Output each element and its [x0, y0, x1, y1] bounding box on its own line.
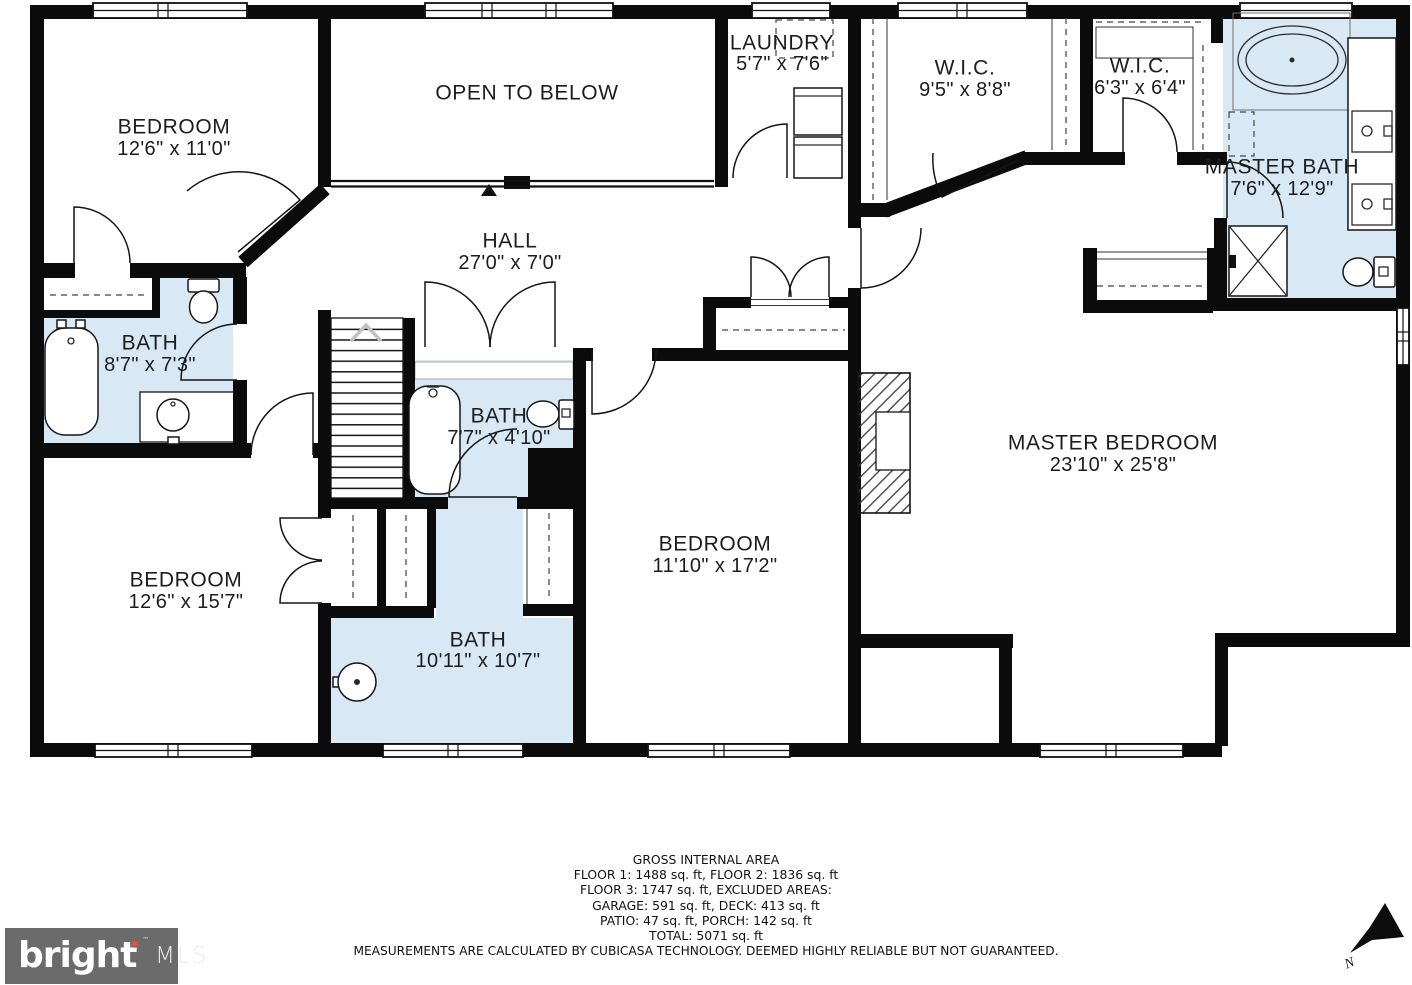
logo-brand-text: bright	[18, 938, 136, 974]
room-label: BATH	[471, 405, 528, 428]
room-label: HALL	[483, 230, 538, 253]
room-label: LAUNDRY	[730, 32, 834, 55]
compass-north-icon: N	[1336, 893, 1412, 971]
room-label: BATH	[122, 332, 179, 355]
room-label: MASTER BEDROOM	[1008, 432, 1218, 455]
room-label: 11'10" x 17'2"	[653, 555, 778, 577]
fireplace	[858, 373, 910, 513]
toilet-icon	[1343, 257, 1395, 287]
floor-plan: BEDROOM12'6" x 11'0"OPEN TO BELOWLAUNDRY…	[0, 0, 1412, 985]
room-label: 10'11" x 10'7"	[416, 650, 541, 672]
room-label: 7'6" x 12'9"	[1230, 178, 1333, 200]
room-label: 12'6" x 15'7"	[129, 591, 244, 613]
room-label: 6'3" x 6'4"	[1094, 77, 1186, 99]
room-label: W.I.C.	[935, 57, 996, 80]
area-line: GARAGE: 591 sq. ft, DECK: 413 sq. ft	[0, 898, 1412, 913]
room-label: 12'6" x 11'0"	[117, 138, 230, 160]
staircase	[331, 318, 403, 498]
area-line: FLOOR 3: 1747 sq. ft, EXCLUDED AREAS:	[0, 882, 1412, 897]
windows	[93, 3, 1409, 757]
room-label: 27'0" x 7'0"	[458, 252, 561, 274]
shower-stall-icon	[1229, 226, 1287, 296]
room-label: 9'5" x 8'8"	[919, 79, 1011, 101]
room-label: BATH	[450, 629, 507, 652]
area-total: TOTAL: 5071 sq. ft	[0, 928, 1412, 943]
room-label: MASTER BATH	[1205, 156, 1359, 179]
logo-star-icon: ✶	[128, 935, 141, 953]
disclaimer: MEASUREMENTS ARE CALCULATED BY CUBICASA …	[0, 944, 1412, 959]
diagonal-walls	[243, 157, 1027, 262]
vanity-icon	[1348, 38, 1396, 230]
room-label: BEDROOM	[659, 533, 772, 556]
room-label: 23'10" x 25'8"	[1050, 454, 1176, 476]
logo-mls-text: MLS	[155, 945, 208, 968]
room-label: 5'7" x 7'6"	[736, 53, 828, 75]
toilet-icon	[527, 400, 574, 429]
area-line: PATIO: 47 sq. ft, PORCH: 142 sq. ft	[0, 913, 1412, 928]
room-label: W.I.C.	[1110, 55, 1171, 78]
room-label: BEDROOM	[130, 569, 243, 592]
walls	[30, 5, 1410, 757]
room-label: 7'7" x 4'10"	[447, 427, 550, 449]
room-label: OPEN TO BELOW	[435, 82, 618, 105]
bathtub-icon	[45, 320, 98, 435]
bright-mls-logo: bright✶™MLS	[5, 928, 178, 984]
logo-trademark: ™	[142, 936, 149, 944]
toilet-icon	[188, 279, 219, 323]
area-title: GROSS INTERNAL AREA	[0, 852, 1412, 867]
room-label: 8'7" x 7'3"	[104, 354, 196, 376]
room-label: BEDROOM	[118, 116, 231, 139]
floor-plan-page: BEDROOM12'6" x 11'0"OPEN TO BELOWLAUNDRY…	[0, 0, 1412, 985]
area-line: FLOOR 1: 1488 sq. ft, FLOOR 2: 1836 sq. …	[0, 867, 1412, 882]
area-summary: GROSS INTERNAL AREA FLOOR 1: 1488 sq. ft…	[0, 852, 1412, 959]
compass-label: N	[1342, 955, 1358, 971]
